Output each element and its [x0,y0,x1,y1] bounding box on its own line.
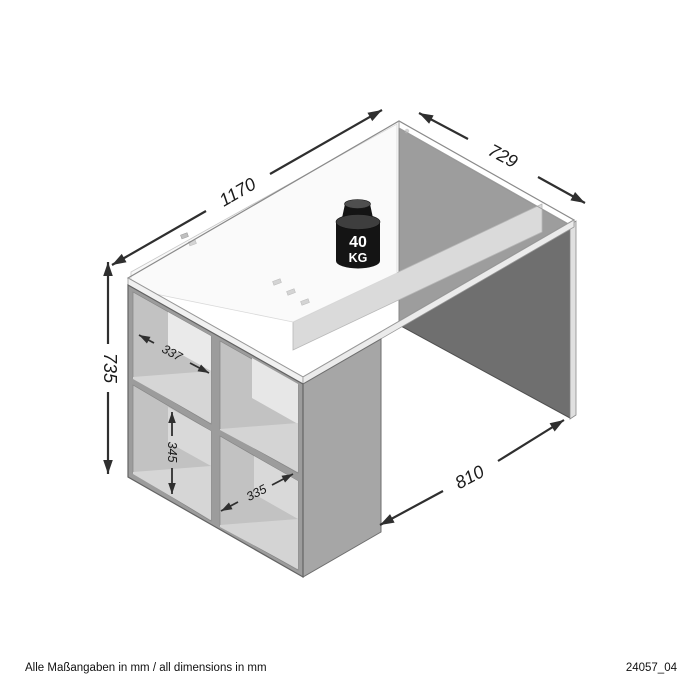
dimension-height-735: 735 [100,262,120,474]
weight-body-top [336,215,380,230]
compartment-bottom-right-floor [220,519,298,569]
footer-note: Alle Maßangaben in mm / all dimensions i… [25,662,267,674]
desk-illustration [128,121,576,577]
desk-dimension-diagram: 1170 729 735 810 337 345 [0,0,700,700]
dim-label-compartment-height: 345 [165,442,179,463]
drawing-number: 24057_04 [626,662,678,674]
weight-value: 40 [349,234,367,251]
dim-label-height: 735 [100,353,120,384]
dim-label-knee-space: 810 [452,461,488,493]
technical-drawing-page: 1170 729 735 810 337 345 [0,0,700,700]
weight-knob-top [345,200,371,209]
dimension-knee-space-810: 810 [380,420,564,525]
weight-unit: KG [349,251,368,265]
right-side-panel-front-edge [570,221,576,419]
dim-label-depth: 729 [485,140,521,172]
